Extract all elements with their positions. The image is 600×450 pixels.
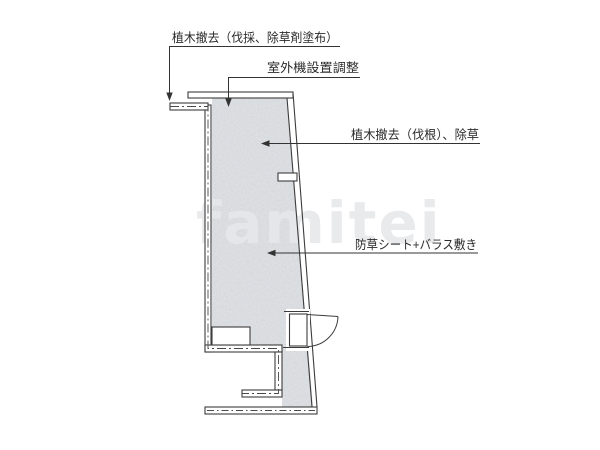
label-weed-sheet-gravel: 防草シート+バラス敷き xyxy=(355,237,477,252)
top-wall-cap xyxy=(188,92,293,98)
door-frame xyxy=(290,314,308,346)
diagram-canvas: famitei xyxy=(0,0,600,450)
label-tree-removal-cut: 植木撤去（伐採、除草剤塗布） xyxy=(172,30,338,45)
step-notch xyxy=(212,327,250,345)
construction-plan-diagram: famitei xyxy=(0,0,600,450)
label-outdoor-unit: 室外機設置調整 xyxy=(267,60,360,75)
wall-vent-notch xyxy=(278,173,297,181)
label-tree-removal-root: 植木撤去（伐根）、除草 xyxy=(351,127,479,142)
